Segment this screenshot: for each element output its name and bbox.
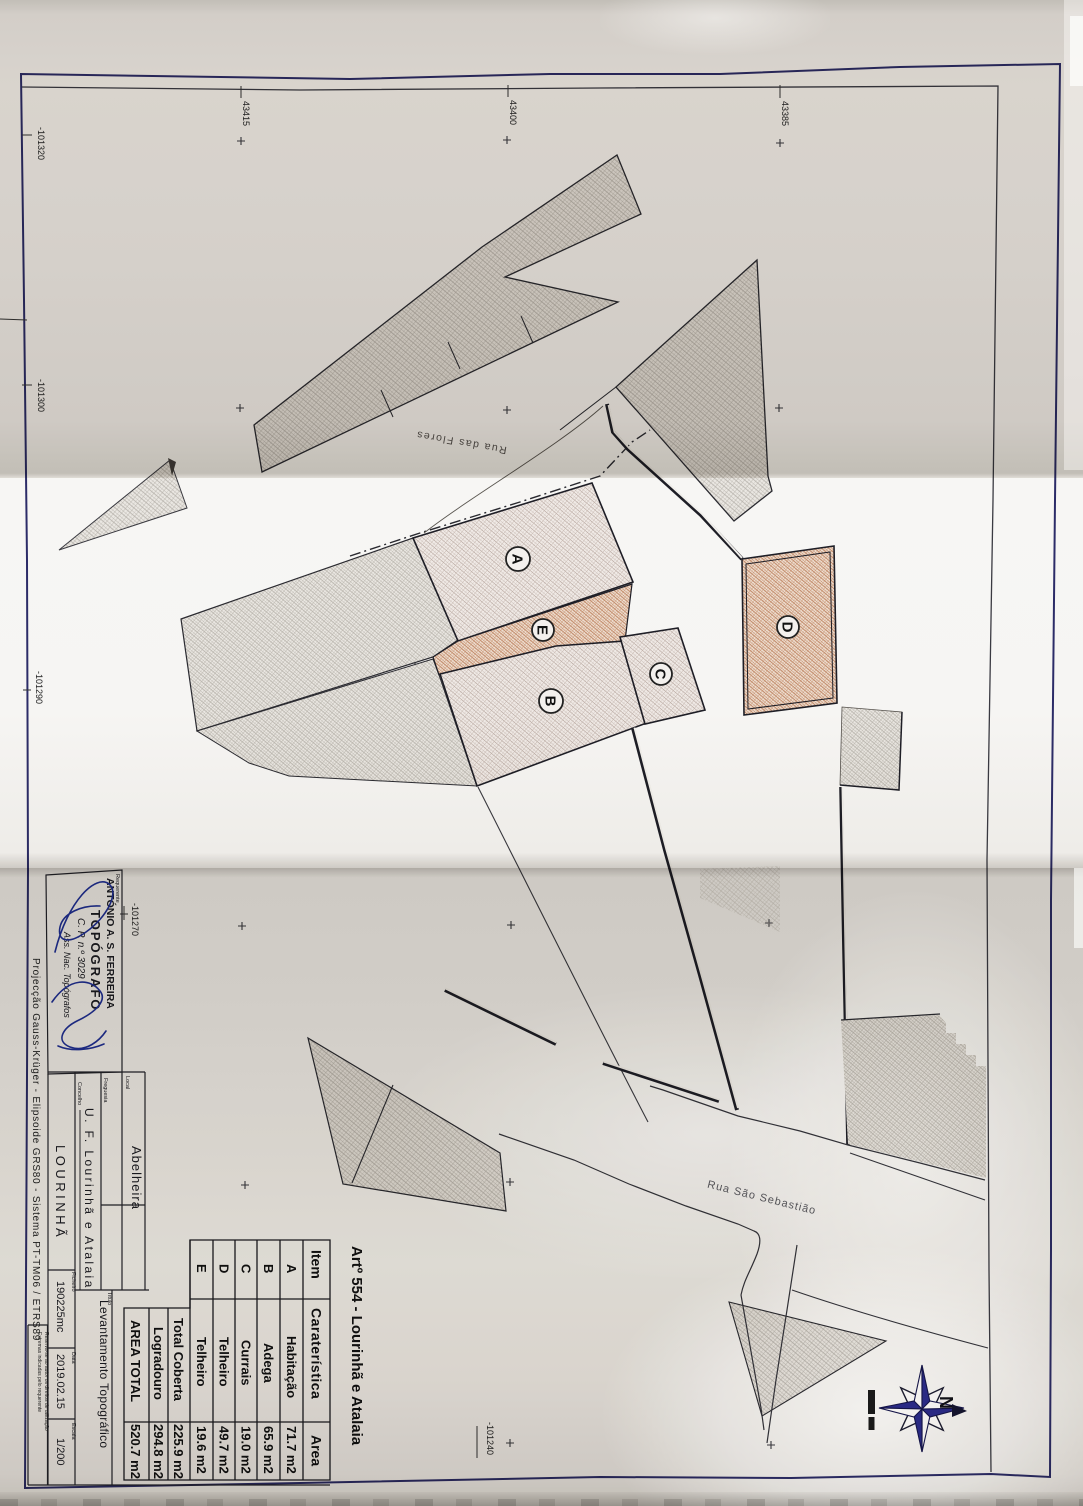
svg-text:Local: Local bbox=[124, 1076, 130, 1089]
svg-text:Habitação: Habitação bbox=[284, 1336, 299, 1398]
svg-text:Ficheiro: Ficheiro bbox=[70, 1272, 76, 1292]
svg-text:ANTÓNIO A. S. FERREIRA: ANTÓNIO A. S. FERREIRA bbox=[104, 878, 117, 1009]
svg-text:Logradouro: Logradouro bbox=[151, 1327, 166, 1400]
svg-text:49.7 m2: 49.7 m2 bbox=[217, 1426, 232, 1474]
svg-text:C: C bbox=[652, 669, 669, 680]
svg-text:C. P. n.º 3029: C. P. n.º 3029 bbox=[75, 918, 86, 979]
svg-text:-101320: -101320 bbox=[36, 127, 46, 160]
svg-text:Telheiro: Telheiro bbox=[194, 1337, 209, 1387]
svg-text:A: A bbox=[284, 1264, 299, 1274]
svg-text:19.0 m2: 19.0 m2 bbox=[239, 1426, 254, 1474]
svg-text:-101270: -101270 bbox=[130, 903, 140, 936]
svg-text:-101300: -101300 bbox=[36, 379, 46, 412]
svg-text:Reserva-se ao autor os direito: Reserva-se ao autor os direitos de utili… bbox=[43, 1332, 49, 1431]
svg-text:AREA TOTAL: AREA TOTAL bbox=[128, 1320, 143, 1402]
svg-text:71.7 m2: 71.7 m2 bbox=[284, 1426, 299, 1474]
svg-text:Extremas indicadas pelo requer: Extremas indicadas pelo requerente bbox=[36, 1332, 42, 1412]
svg-text:LOURINHÃ: LOURINHÃ bbox=[53, 1145, 68, 1240]
svg-text:Levantamento Topográfico: Levantamento Topográfico bbox=[97, 1300, 111, 1448]
svg-text:E: E bbox=[194, 1264, 209, 1273]
svg-text:Total Coberta: Total Coberta bbox=[171, 1318, 186, 1402]
svg-text:Ass. Nac. Topógrafos: Ass. Nac. Topógrafos bbox=[62, 931, 72, 1018]
svg-text:43385: 43385 bbox=[780, 101, 790, 126]
svg-text:-101240: -101240 bbox=[485, 1422, 495, 1455]
svg-text:-101290: -101290 bbox=[34, 671, 44, 704]
svg-text:520.7 m2: 520.7 m2 bbox=[128, 1424, 143, 1479]
svg-text:65.9 m2: 65.9 m2 bbox=[261, 1426, 276, 1474]
svg-text:Telheiro: Telheiro bbox=[217, 1337, 232, 1387]
svg-text:Abelheira: Abelheira bbox=[129, 1146, 144, 1210]
svg-text:Caraterística: Caraterística bbox=[309, 1308, 325, 1399]
svg-text:Concelho: Concelho bbox=[76, 1082, 82, 1105]
svg-text:U. F. Lourinhã e Atalaia: U. F. Lourinhã e Atalaia bbox=[82, 1108, 96, 1290]
svg-text:294.8 m2: 294.8 m2 bbox=[151, 1424, 166, 1479]
svg-text:Item: Item bbox=[309, 1250, 325, 1279]
svg-text:Freguesia: Freguesia bbox=[102, 1078, 108, 1103]
svg-text:190225mc: 190225mc bbox=[54, 1281, 66, 1333]
svg-text:C: C bbox=[239, 1264, 254, 1274]
svg-text:225.9 m2: 225.9 m2 bbox=[171, 1424, 186, 1479]
svg-text:Escala: Escala bbox=[70, 1423, 76, 1440]
svg-text:A: A bbox=[509, 554, 526, 565]
svg-text:19.6 m2: 19.6 m2 bbox=[194, 1426, 209, 1474]
svg-text:Artº 554 - Lourinhã e Atalaia: Artº 554 - Lourinhã e Atalaia bbox=[348, 1246, 365, 1446]
svg-text:D: D bbox=[217, 1264, 232, 1273]
svg-text:43400: 43400 bbox=[508, 100, 518, 125]
svg-text:Projecção Gauss-Krüger - Elips: Projecção Gauss-Krüger - Elipsoide GRS80… bbox=[30, 958, 41, 1341]
svg-text:B: B bbox=[261, 1264, 276, 1273]
svg-text:Rua das Flores: Rua das Flores bbox=[415, 428, 508, 456]
svg-text:B: B bbox=[542, 696, 559, 707]
svg-text:43415: 43415 bbox=[241, 101, 251, 126]
svg-text:E: E bbox=[534, 625, 551, 635]
svg-text:Area: Area bbox=[309, 1435, 325, 1466]
svg-text:2019.02.15: 2019.02.15 bbox=[54, 1354, 66, 1409]
svg-text:Rua São Sebastião: Rua São Sebastião bbox=[706, 1179, 817, 1218]
svg-text:1/200: 1/200 bbox=[54, 1438, 66, 1466]
svg-text:Currais: Currais bbox=[239, 1340, 254, 1386]
svg-text:D: D bbox=[779, 622, 796, 633]
svg-text:Adega: Adega bbox=[261, 1343, 276, 1384]
svg-text:Data: Data bbox=[70, 1352, 76, 1365]
